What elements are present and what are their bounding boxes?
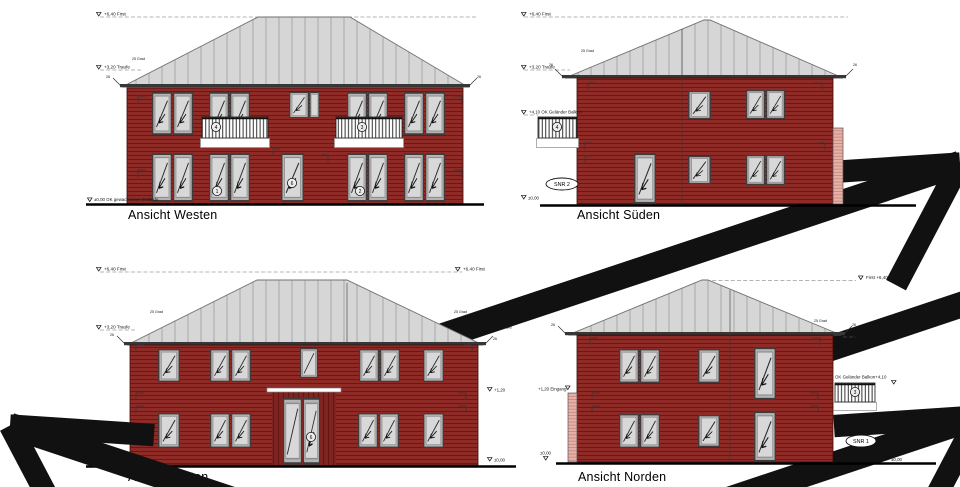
level-label-first: +6,40 First [104, 12, 127, 17]
window [174, 93, 193, 134]
window [310, 93, 318, 118]
balcony-number: 4 [552, 122, 561, 131]
level-label-traufe: +3,20 Traufe [104, 325, 130, 330]
elevations-canvas: +6,40 First +3,20 Traufe 25 Grad 26 26 [0, 0, 960, 487]
window [699, 416, 719, 447]
level-marker-icon [97, 267, 102, 271]
level-marker-icon [97, 12, 102, 16]
entrance-level-label: +1,20 Eingang [538, 387, 567, 392]
svg-text:SNR 1: SNR 1 [853, 439, 869, 445]
window [369, 154, 388, 201]
overhang-mark [485, 336, 493, 344]
window [290, 93, 309, 118]
entrance-door [284, 398, 302, 463]
overhang-label: 26 [110, 333, 114, 337]
ground-level-label: ±0,00 [540, 451, 552, 456]
window [159, 350, 179, 382]
overhang-mark [558, 326, 566, 334]
window [424, 414, 444, 447]
ground-level-label: ±0,00 [891, 457, 903, 462]
level-marker-icon [88, 198, 93, 202]
window [424, 350, 444, 382]
roof-slope-label: 25 Grad [150, 310, 163, 314]
roof-slope-label: 25 Grad [454, 310, 467, 314]
overhang-mark [845, 69, 853, 77]
window [153, 154, 172, 201]
roof-slope-label: 25 Grad [814, 319, 827, 323]
level-marker-icon [544, 456, 549, 460]
level-marker-icon [488, 457, 493, 461]
window [426, 154, 445, 201]
overhang-label: 26 [549, 63, 553, 67]
svg-text:SNR 2: SNR 2 [554, 182, 570, 188]
overhang-mark [117, 336, 125, 344]
window [426, 93, 445, 134]
level-label-traufe: +3,20 Traufe [104, 65, 130, 70]
svg-text:6: 6 [310, 435, 313, 441]
level-label-traufe: +3,20 Traufe [486, 325, 512, 330]
window [767, 91, 785, 119]
balcony [537, 117, 579, 148]
level-marker-icon [488, 387, 493, 391]
level-marker-icon [892, 380, 897, 384]
snr-tag: SNR 1 [846, 435, 876, 447]
overhang-mark [469, 78, 477, 86]
overhang-label: 26 [106, 75, 110, 79]
level-label-traufe: Traufe +3,20 [866, 332, 892, 337]
window [620, 415, 639, 448]
window [301, 349, 318, 378]
svg-text:2: 2 [359, 189, 362, 195]
window [380, 414, 399, 447]
level-marker-icon [522, 65, 527, 69]
entrance-chimney [568, 393, 577, 462]
unit-number: 1 [212, 186, 221, 195]
unit-number: 6 [287, 178, 296, 187]
window [689, 92, 710, 119]
snr-tag: SNR 2 [546, 178, 578, 190]
ground-level-label: ±0,00 [528, 196, 540, 201]
door [282, 154, 303, 201]
overhang-label: 26 [493, 337, 497, 341]
window [174, 154, 193, 201]
level-label-first: +6,40 First [529, 12, 552, 17]
window [381, 350, 400, 382]
window [232, 414, 251, 447]
level-marker-icon [97, 65, 102, 69]
level-marker-icon [859, 276, 864, 280]
balcony-number: 3 [357, 122, 366, 131]
window [767, 156, 785, 185]
eave-fascia [120, 84, 470, 87]
panel-title: Ansicht Westen [128, 208, 217, 222]
chimney [833, 128, 843, 204]
window [153, 93, 172, 134]
hip-roof [565, 20, 843, 78]
overhang-label: 26 [853, 63, 857, 67]
level-label-mid: +1,20 [494, 388, 506, 393]
roof-slope-label: 25 Grad [581, 49, 594, 53]
panel-title: Ansicht Norden [578, 470, 666, 484]
window [231, 154, 250, 201]
window [359, 414, 378, 447]
window [360, 350, 379, 382]
balcony-railing-label: OK Geländer Balkon+4,10 [835, 375, 887, 380]
balcony-number: 4 [211, 122, 220, 131]
door [755, 412, 775, 461]
window [620, 350, 639, 383]
window [159, 414, 179, 447]
window [641, 415, 660, 448]
window [232, 350, 251, 382]
level-label-zero: ±0,00 [494, 458, 506, 463]
overhang-label: 26 [852, 323, 856, 327]
level-label-first: +6,40 First [104, 267, 127, 272]
window [211, 350, 230, 382]
level-marker-icon [522, 110, 527, 114]
architectural-elevation-sheet: +6,40 First +3,20 Traufe 25 Grad 26 26 [0, 0, 960, 487]
window [641, 350, 660, 383]
svg-text:3: 3 [361, 125, 364, 131]
panel-title: Ansicht Süden [577, 208, 660, 222]
svg-text:4: 4 [556, 125, 559, 131]
roof-slope-label: 25 Grad [132, 57, 145, 61]
balcony-railing-label: +4,10 OK Geländer Balkon [529, 110, 582, 115]
window [755, 348, 775, 399]
entrance-door [304, 398, 320, 463]
level-marker-icon [522, 195, 527, 199]
window [211, 414, 230, 447]
door [635, 154, 655, 203]
unit-number: 6 [306, 432, 315, 441]
entrance-canopy [267, 388, 341, 392]
window [689, 157, 710, 184]
svg-text:4: 4 [215, 125, 218, 131]
overhang-mark [113, 78, 121, 86]
level-marker-icon [522, 12, 527, 16]
overhang-label: 26 [551, 323, 555, 327]
level-label-first: +6,40 First [463, 267, 486, 272]
svg-text:6: 6 [291, 181, 294, 187]
hip-roof [127, 280, 483, 345]
unit-number: 2 [355, 186, 364, 195]
level-marker-icon [456, 267, 461, 271]
window [747, 91, 765, 119]
ground-level-label: ±0,00 OK gewachsenes Gelände [94, 197, 159, 202]
balcony-number: 3 [850, 387, 859, 396]
svg-text:3: 3 [854, 390, 857, 396]
overhang-label: 26 [477, 75, 481, 79]
window [699, 350, 719, 383]
window [747, 156, 765, 185]
hip-roof [122, 17, 468, 87]
svg-text:1: 1 [216, 189, 219, 195]
window [405, 154, 424, 201]
balcony [201, 117, 270, 148]
balcony [335, 117, 404, 148]
window [405, 93, 424, 134]
level-label-first: First +6,40 [866, 275, 888, 280]
level-marker-icon [97, 325, 102, 329]
